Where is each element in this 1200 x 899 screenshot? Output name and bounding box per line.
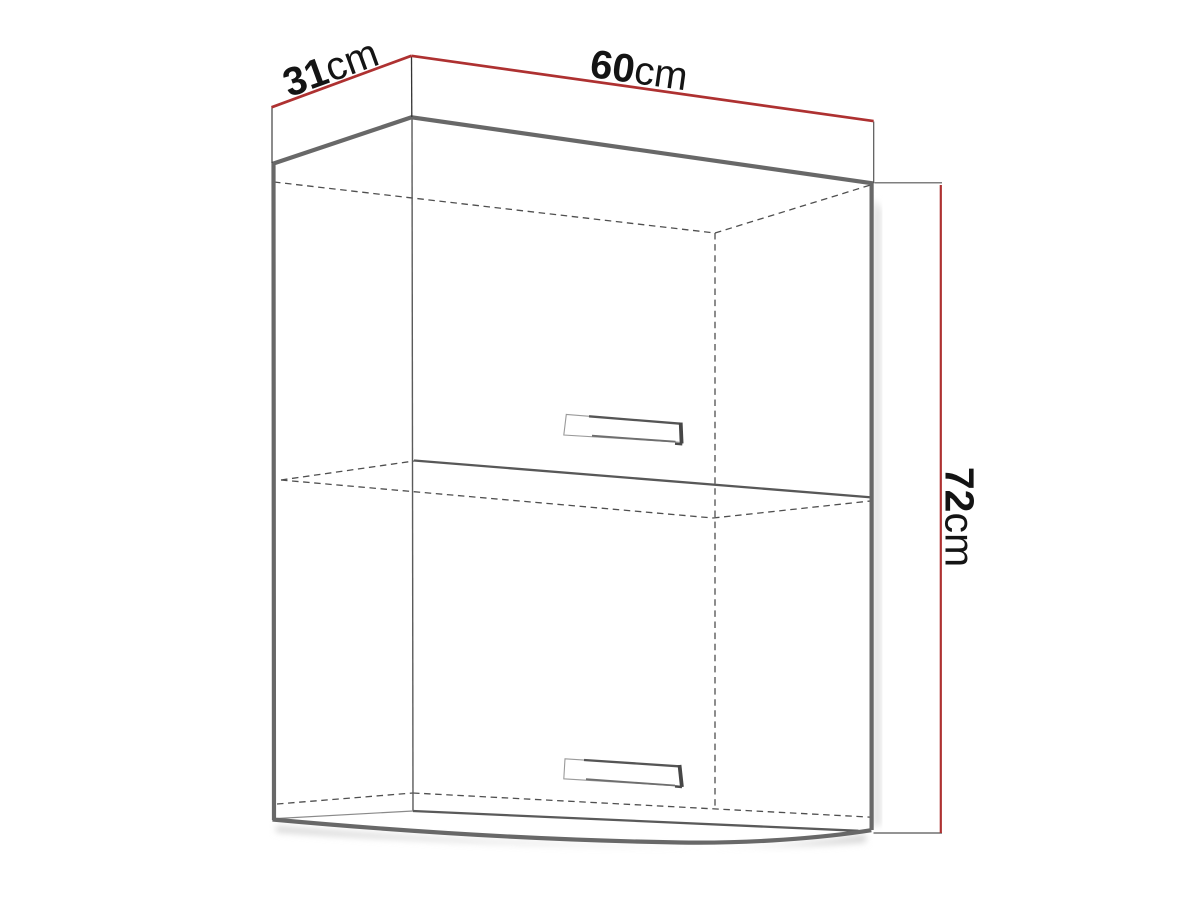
svg-text:72cm: 72cm [937,467,983,567]
